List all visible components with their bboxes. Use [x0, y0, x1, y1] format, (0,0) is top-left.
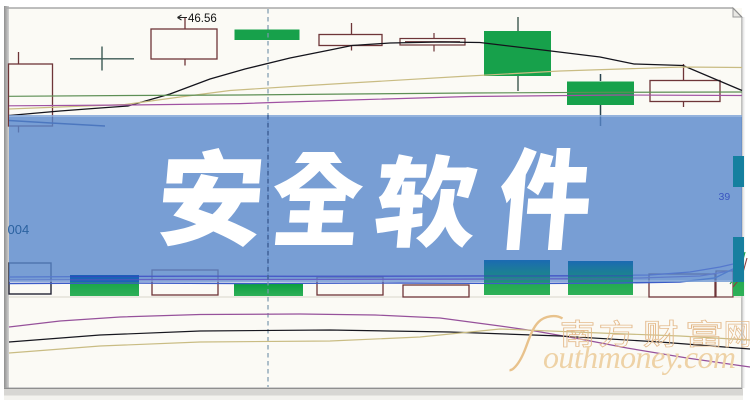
svg-text:004: 004	[8, 222, 30, 237]
svg-text:outhmoney.com: outhmoney.com	[543, 339, 736, 375]
svg-text:46.56: 46.56	[188, 13, 217, 25]
svg-text:39: 39	[719, 191, 731, 203]
